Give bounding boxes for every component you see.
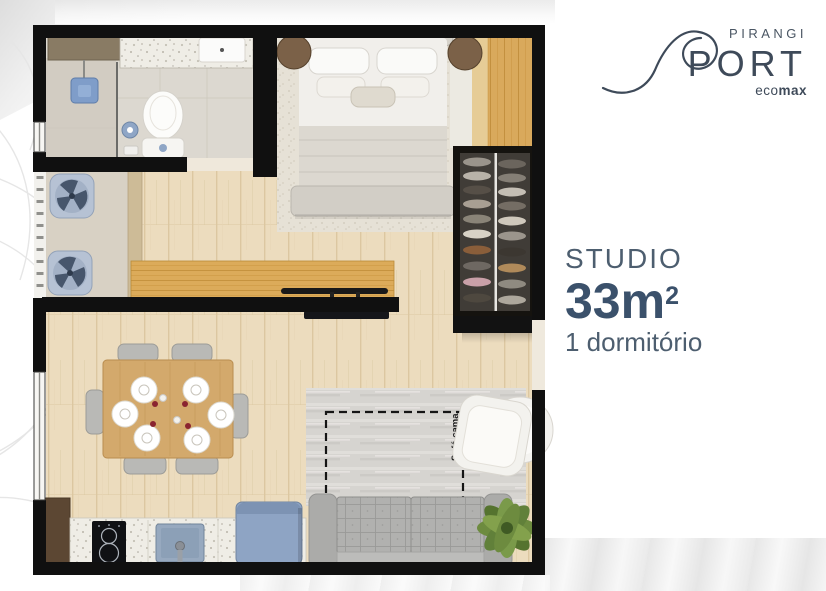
wardrobe xyxy=(453,146,537,343)
wardrobe-rail xyxy=(495,153,498,311)
brand-name-main: PORT xyxy=(688,43,807,84)
armchair xyxy=(450,392,534,478)
tech-area xyxy=(34,170,142,298)
bathroom-door-threshold xyxy=(187,158,253,171)
logo-graphic: PIRANGI PORT ecomax xyxy=(595,22,810,102)
refrigerator xyxy=(236,502,302,564)
brand-name-top: PIRANGI xyxy=(729,26,807,41)
tall-cabinet xyxy=(44,498,70,564)
tv-bracket xyxy=(281,288,388,294)
pillow xyxy=(377,48,437,74)
ac-condenser-unit xyxy=(50,174,94,218)
unit-bedrooms: 1 dormitório xyxy=(565,327,702,358)
shower-floor xyxy=(46,58,116,158)
toilet xyxy=(142,91,184,158)
unit-info: STUDIO 33m2 1 dormitório xyxy=(565,243,702,358)
unit-type-label: STUDIO xyxy=(565,243,702,275)
bathroom xyxy=(46,30,253,171)
tv-screen xyxy=(304,311,389,319)
nightstand xyxy=(448,36,482,70)
living-area: Sofá cama xyxy=(306,388,553,568)
sofa-arm xyxy=(309,494,337,568)
marketing-sheet: { "brand": { "name_top": "PIRANGI", "nam… xyxy=(0,0,826,591)
kitchen-sink xyxy=(156,524,204,563)
dining-chair xyxy=(124,456,166,474)
closet-wood-panel xyxy=(488,30,533,148)
ac-condenser-unit xyxy=(48,251,92,295)
accent-pillow xyxy=(351,87,395,107)
nightstand xyxy=(277,35,311,69)
foot-blanket xyxy=(291,186,455,216)
dining-area xyxy=(86,344,248,474)
dining-chair xyxy=(86,390,104,434)
brand-eco-line: ecomax xyxy=(755,83,807,98)
plant xyxy=(477,498,537,558)
unit-area: 33m2 xyxy=(565,276,702,326)
entry-opening xyxy=(532,320,545,390)
sofa-cushion xyxy=(411,497,484,553)
blanket xyxy=(299,126,447,188)
dining-chair xyxy=(118,344,158,362)
pillow xyxy=(309,48,369,74)
bed-double xyxy=(291,30,455,219)
brand-logo: PIRANGI PORT ecomax xyxy=(595,22,810,102)
dining-chair xyxy=(176,456,218,474)
cooktop xyxy=(92,521,126,565)
dining-chair xyxy=(172,344,212,362)
sofa-cushion xyxy=(337,497,411,553)
